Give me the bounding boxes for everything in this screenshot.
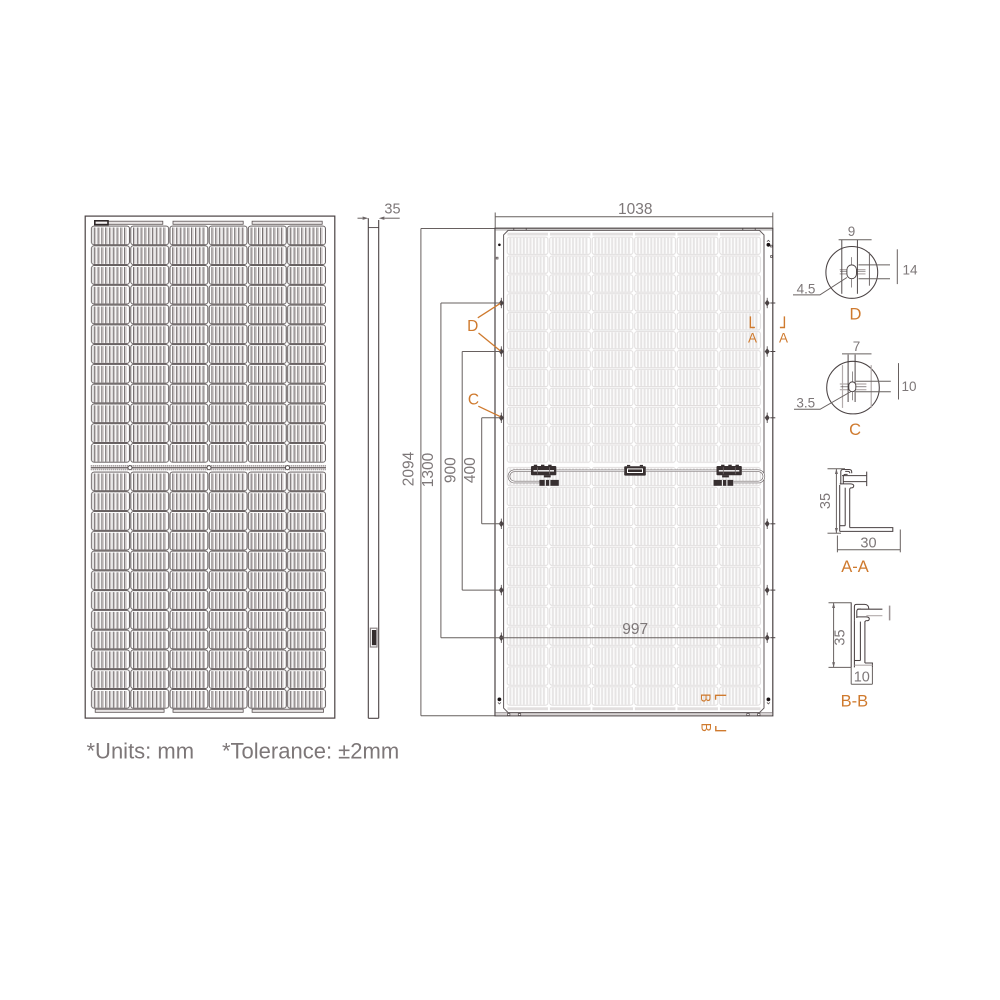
svg-text:400: 400 xyxy=(462,457,479,483)
svg-text:900: 900 xyxy=(443,457,460,483)
svg-text:D: D xyxy=(849,306,861,324)
svg-text:10: 10 xyxy=(901,379,916,394)
svg-text:B-B: B-B xyxy=(841,692,869,710)
svg-text:30: 30 xyxy=(860,536,876,552)
svg-text:B: B xyxy=(698,693,713,702)
svg-text:4.5: 4.5 xyxy=(797,281,816,296)
svg-text:*Units: mm: *Units: mm xyxy=(87,739,195,764)
svg-text:A: A xyxy=(748,330,757,345)
svg-text:B: B xyxy=(698,723,713,732)
svg-text:1300: 1300 xyxy=(420,452,437,487)
svg-text:35: 35 xyxy=(833,629,849,645)
svg-text:35: 35 xyxy=(384,201,400,217)
svg-text:997: 997 xyxy=(622,621,648,638)
svg-text:C: C xyxy=(849,421,861,439)
svg-text:D: D xyxy=(467,318,478,335)
svg-text:3.5: 3.5 xyxy=(796,396,815,411)
svg-text:10: 10 xyxy=(854,670,870,686)
svg-text:35: 35 xyxy=(818,493,834,509)
svg-text:9: 9 xyxy=(848,224,856,239)
svg-text:7: 7 xyxy=(853,339,861,354)
svg-text:1038: 1038 xyxy=(618,201,652,218)
svg-text:A-A: A-A xyxy=(841,558,869,576)
svg-text:A: A xyxy=(779,330,788,345)
svg-text:C: C xyxy=(468,392,479,409)
svg-text:2094: 2094 xyxy=(400,451,417,486)
svg-text:*Tolerance: ±2mm: *Tolerance: ±2mm xyxy=(222,739,399,764)
svg-text:14: 14 xyxy=(902,263,918,278)
